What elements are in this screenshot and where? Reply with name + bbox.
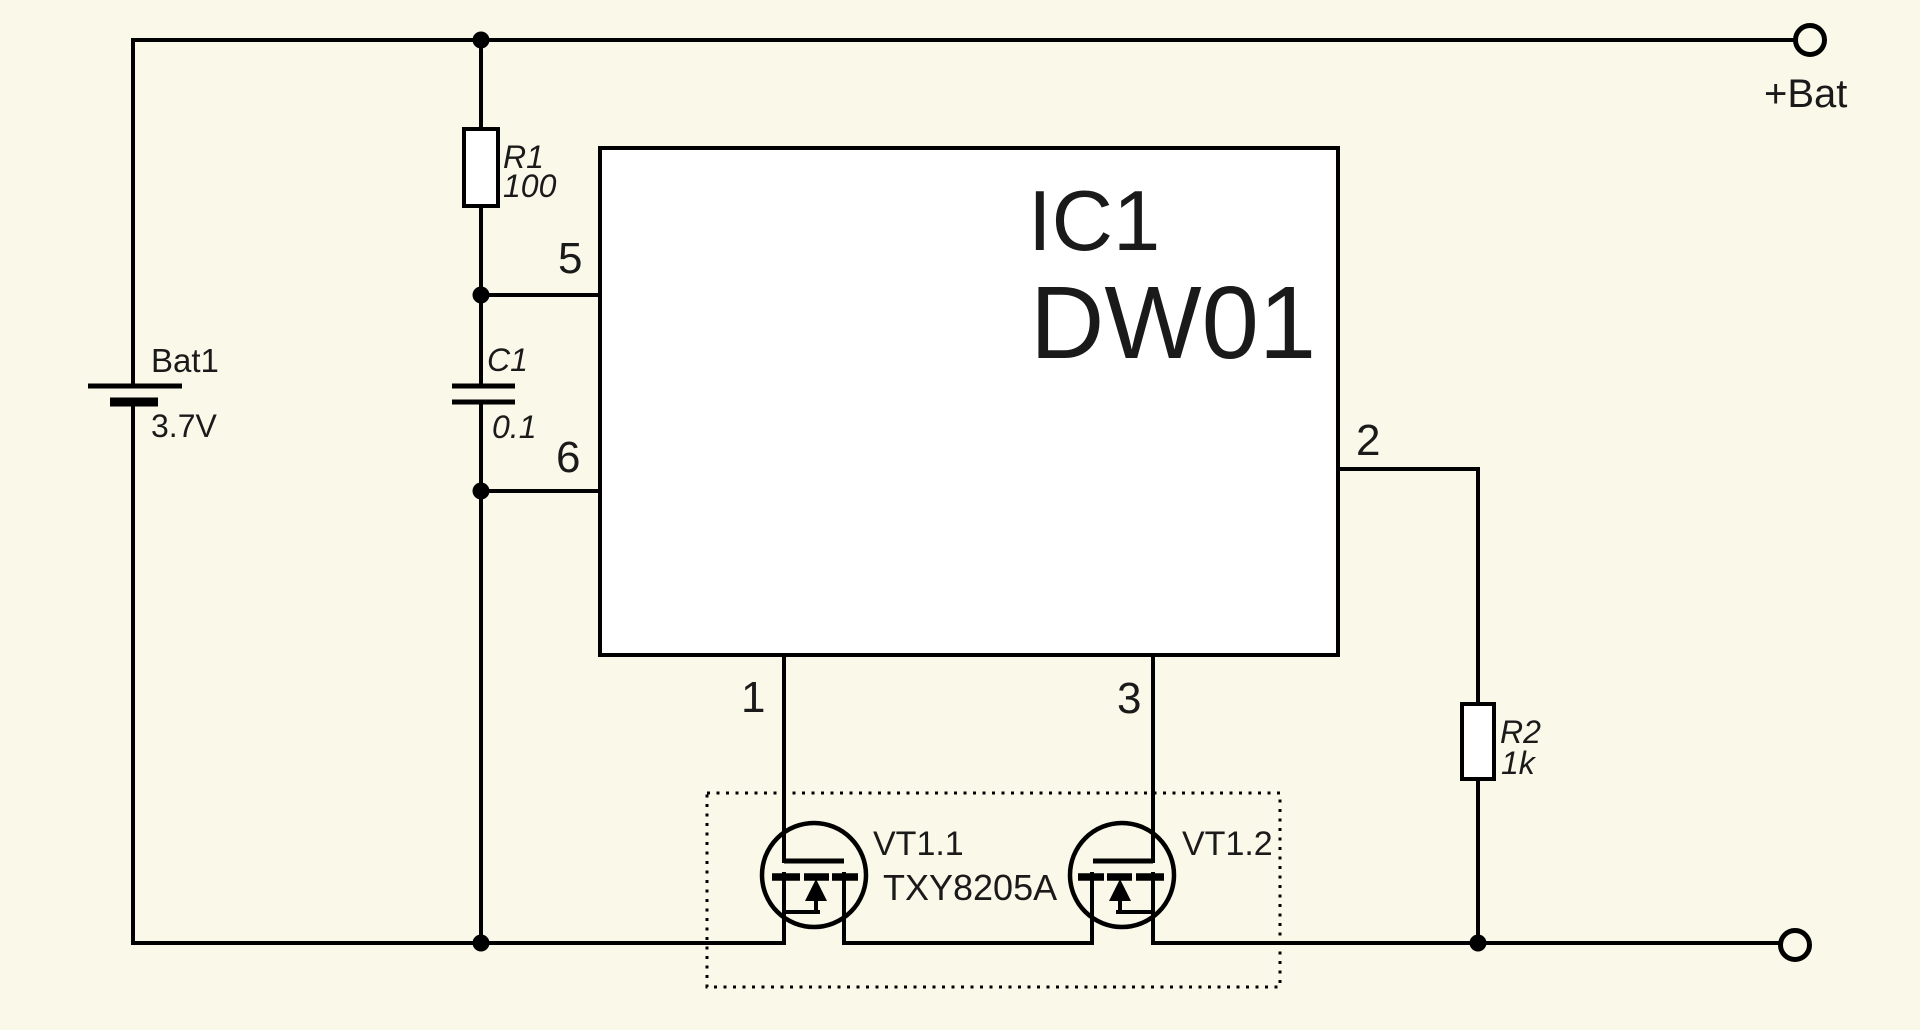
mosfet-part-label: TXY8205A — [883, 867, 1057, 908]
terminal-negative-circle — [1781, 931, 1810, 960]
mosfet-vt1-2-ref-label: VT1.2 — [1182, 825, 1273, 863]
resistor-r1-value-label: 100 — [503, 168, 557, 204]
resistor-r1-body — [464, 129, 498, 206]
ic-part-label: DW01 — [1030, 265, 1316, 380]
ic-pin1-label: 1 — [741, 673, 765, 722]
ic-pin2-label: 2 — [1356, 416, 1380, 465]
resistor-r2: R2 1k — [1462, 704, 1541, 781]
resistor-r2-body — [1462, 704, 1494, 779]
capacitor-c1-ref-label: C1 — [487, 342, 528, 378]
resistor-r2-value-label: 1k — [1501, 745, 1537, 781]
junction-dot-bottom-r2 — [1470, 935, 1487, 952]
mosfet-vt1-1 — [762, 823, 866, 943]
ic-dw01: IC1 DW01 5 6 2 1 3 — [556, 148, 1380, 723]
ic-pin3-label: 3 — [1117, 674, 1141, 723]
battery-ref-label: Bat1 — [151, 342, 219, 379]
battery-symbol: Bat1 3.7V — [88, 342, 219, 444]
battery-voltage-label: 3.7V — [151, 408, 217, 444]
terminals: +Bat — [1764, 26, 1847, 960]
junction-dot-pin6 — [473, 483, 490, 500]
ic-pin6-label: 6 — [556, 433, 580, 482]
mosfet-vt1-1-ref-label: VT1.1 — [873, 825, 964, 863]
mosfet-vt1-1-body-diode — [805, 879, 827, 901]
ic-body — [600, 148, 1338, 655]
capacitor-c1-value-label: 0.1 — [492, 409, 536, 445]
junction-dot-bottom-left — [473, 935, 490, 952]
mosfet-vt1-2-body-diode — [1109, 879, 1131, 901]
schematic-page: Bat1 3.7V R1 100 C1 0.1 IC1 DW01 5 6 2 1… — [0, 0, 1920, 1030]
junction-dot-top-rail — [473, 32, 490, 49]
resistor-r1: R1 100 — [464, 129, 557, 206]
capacitor-c1: C1 0.1 — [452, 342, 536, 445]
mosfet-vt1-2 — [1070, 823, 1174, 943]
ic-ref-label: IC1 — [1028, 174, 1160, 269]
ic-pin5-label: 5 — [558, 234, 582, 283]
dual-mosfet-package: VT1.1 TXY8205A VT1.2 — [707, 793, 1280, 987]
terminal-positive-label: +Bat — [1764, 72, 1847, 116]
terminal-positive-circle — [1796, 26, 1825, 55]
junction-dot-pin5 — [473, 287, 490, 304]
schematic-canvas: Bat1 3.7V R1 100 C1 0.1 IC1 DW01 5 6 2 1… — [0, 0, 1920, 1030]
